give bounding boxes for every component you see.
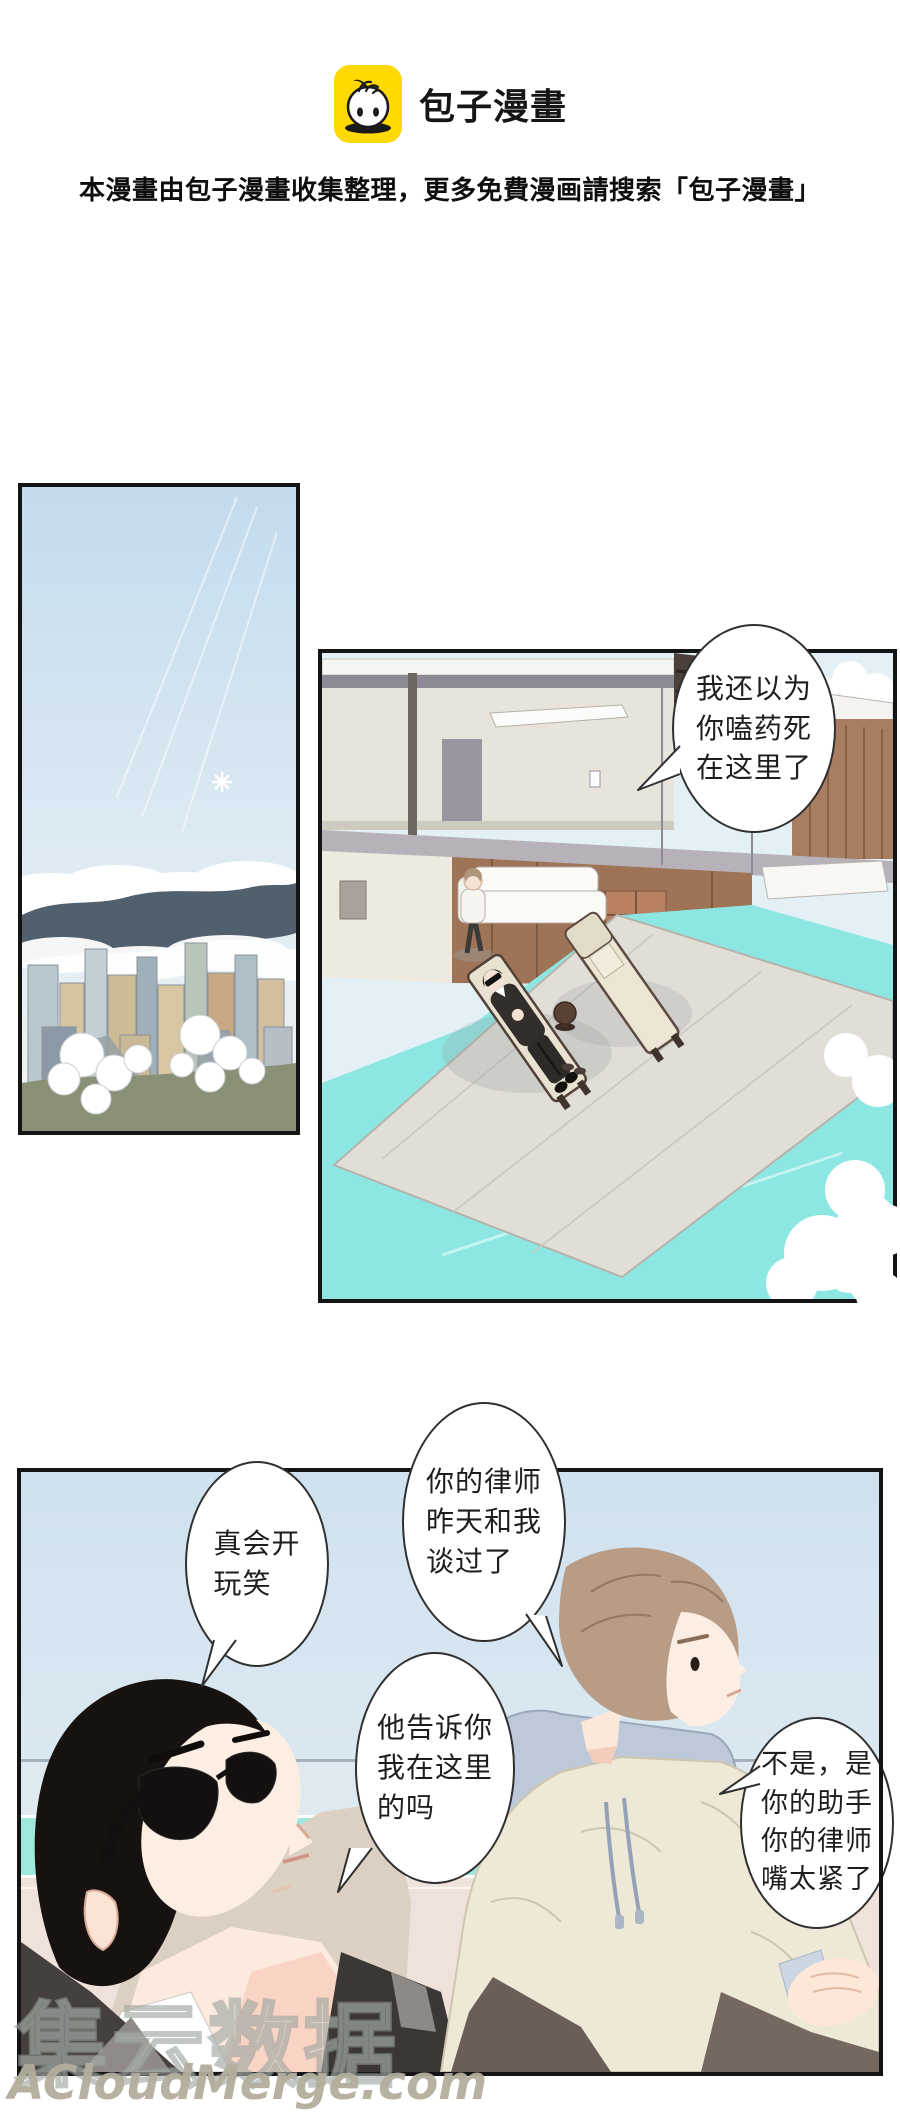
bubble-tail	[200, 1638, 246, 1688]
cloud-over-border	[800, 1150, 900, 1320]
header-subtitle: 本漫畫由包子漫畫收集整理，更多免費漫画請搜索「包子漫畫」	[0, 170, 900, 207]
bubble-tail	[718, 1758, 762, 1800]
speech-bubble-joke: 真会开 玩笑	[185, 1461, 329, 1667]
snowflake	[212, 772, 232, 792]
panel-right-border	[879, 1468, 883, 2076]
bubble-tail	[516, 1612, 564, 1668]
city-illustration	[22, 487, 296, 1131]
bubble-tail	[636, 742, 682, 794]
brand-title: 包子漫畫	[419, 78, 567, 130]
watermark-site: ACloudMerge.com	[8, 2056, 487, 2111]
speech-bubble-pool-greeting: 我还以为 你嗑药死 在这里了	[672, 624, 836, 833]
baozi-mascot-icon	[333, 64, 403, 144]
comic-page: 包子漫畫 本漫畫由包子漫畫收集整理，更多免費漫画請搜索「包子漫畫」	[0, 0, 900, 2121]
speech-bubble-assistant: 不是，是 你的助手 你的律师 嘴太紧了	[740, 1717, 894, 1929]
bubble-tail	[336, 1846, 382, 1894]
side-table	[554, 1002, 576, 1031]
panel-city	[18, 483, 300, 1135]
speech-bubble-lawyer: 你的律师 昨天和我 谈过了	[402, 1402, 566, 1642]
brand-header: 包子漫畫	[0, 58, 900, 150]
